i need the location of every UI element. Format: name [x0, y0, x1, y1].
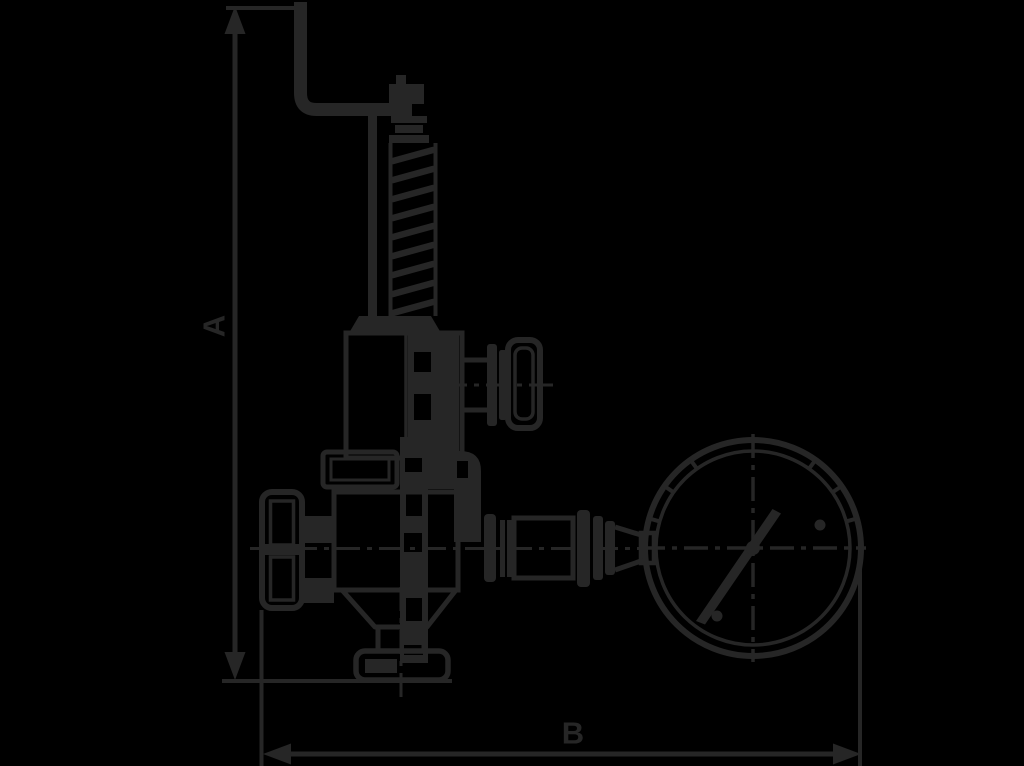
union-ring [500, 520, 505, 577]
bottom-flange-fill [365, 659, 397, 673]
test-lever [301, 2, 430, 143]
coil-bar [393, 245, 433, 256]
dimension-a-label: A [197, 315, 232, 337]
coil-bar [393, 188, 433, 199]
rim-tick [691, 461, 698, 470]
taper-line-top [615, 527, 641, 535]
body-funnel [342, 590, 456, 627]
rim-tick [809, 461, 816, 470]
gauge-needle [696, 509, 781, 625]
spindle-ring [389, 135, 429, 143]
handwheel-stem-upper [302, 516, 334, 543]
gauge-elbow [428, 451, 481, 542]
taper-line-bottom [615, 561, 641, 570]
coil-bar [393, 207, 433, 218]
coil-bar [393, 226, 433, 237]
handwheel-spoke-opening [271, 501, 294, 545]
stem-slot [406, 598, 422, 621]
coil-bar [393, 283, 433, 294]
spring-coils [393, 150, 433, 313]
dimension-b-arrow-left [263, 744, 291, 765]
handwheel-spoke-opening [271, 557, 294, 600]
elbow-slot [457, 461, 468, 478]
coil-bar [393, 150, 433, 161]
union-ring [507, 520, 512, 577]
gauge-screw-dot [815, 520, 826, 531]
valve-technical-drawing: A B [0, 0, 1024, 766]
spring-assembly [349, 110, 441, 333]
bonnet-slot [414, 394, 431, 420]
dimension-b-label: B [562, 716, 584, 751]
pressure-gauge [641, 434, 866, 662]
flange-ring [605, 521, 615, 575]
coil-bar [393, 302, 433, 313]
flange-ring [484, 514, 496, 582]
coil-bar [393, 264, 433, 275]
body-outline [334, 492, 458, 590]
spring-shoulder [349, 316, 441, 333]
gauge-screw-dot [712, 611, 723, 622]
bonnet-slot [414, 352, 431, 372]
spindle-cap [389, 84, 424, 104]
handwheel-stem-lower [302, 578, 334, 603]
rim-tick [833, 486, 842, 492]
spindle-ring [395, 125, 423, 133]
gauge-needle-hub [746, 541, 760, 555]
dimension-b-arrow-right [833, 744, 861, 765]
coil-bar [393, 169, 433, 180]
diagram-canvas: A B [0, 0, 1024, 766]
spindle-ring [391, 116, 427, 123]
dimension-a-arrow-up [225, 6, 246, 34]
stem-slot [405, 458, 422, 472]
dimension-b: B [262, 551, 862, 766]
flange-ring [593, 516, 603, 580]
union-inner [331, 459, 389, 480]
valve-body [334, 492, 458, 703]
lever-rod [368, 110, 377, 333]
dimension-a-arrow-down [225, 652, 246, 680]
flange-ring [577, 510, 590, 587]
rim-tick [665, 486, 674, 492]
